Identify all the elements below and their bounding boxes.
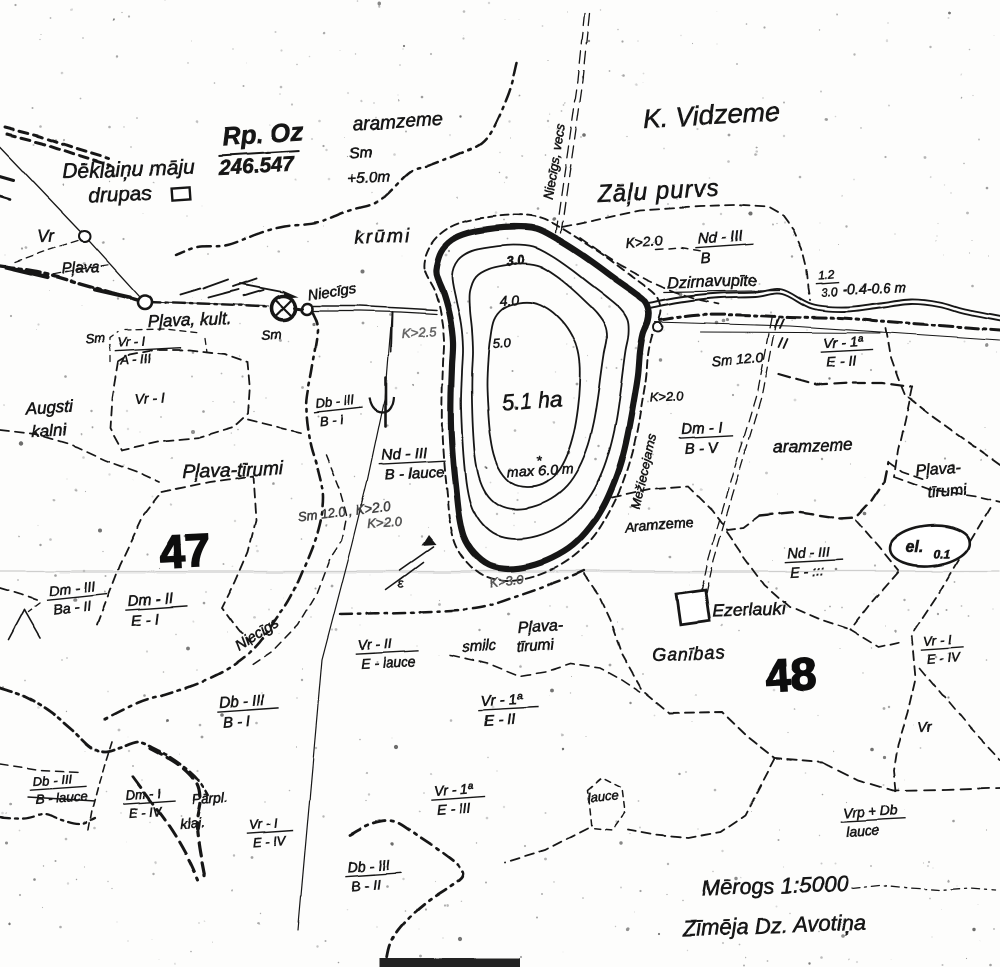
svg-text:47: 47 — [158, 523, 212, 578]
svg-text:B - I: B - I — [319, 411, 345, 428]
svg-text:Sm: Sm — [349, 143, 373, 162]
svg-text:Dēklaiņu māju: Dēklaiņu māju — [61, 155, 195, 183]
svg-text:Vr: Vr — [37, 226, 56, 246]
svg-text:lauce: lauce — [845, 822, 879, 840]
svg-text:el.: el. — [906, 539, 924, 556]
svg-text:K>2.0: K>2.0 — [367, 514, 403, 531]
svg-text:Dzirnavupīte: Dzirnavupīte — [668, 272, 758, 292]
svg-text:B - II: B - II — [350, 876, 381, 894]
svg-text:Sm: Sm — [85, 330, 106, 347]
svg-text:Vr - II: Vr - II — [357, 635, 392, 653]
svg-text:Mērogs 1:5000: Mērogs 1:5000 — [701, 871, 849, 901]
svg-text:E - I: E - I — [130, 611, 159, 630]
svg-text:drupas: drupas — [87, 182, 152, 207]
svg-text:Db - III: Db - III — [32, 771, 72, 789]
svg-text:Dm - I: Dm - I — [681, 419, 723, 438]
svg-text:Nd - III: Nd - III — [381, 445, 427, 464]
svg-text:K>2.5: K>2.5 — [401, 324, 437, 341]
svg-text:Vr - 1ª: Vr - 1ª — [823, 333, 864, 351]
svg-text:K>2.0: K>2.0 — [624, 232, 662, 251]
svg-text:Pļava: Pļava — [61, 258, 99, 277]
svg-text:A - III: A - III — [119, 351, 152, 368]
svg-text:5.1 ha: 5.1 ha — [501, 386, 564, 415]
svg-text:3.0: 3.0 — [820, 285, 838, 300]
svg-text:4.0: 4.0 — [499, 292, 520, 309]
svg-text:3.0: 3.0 — [506, 252, 526, 269]
svg-text:Vrp + Db: Vrp + Db — [842, 802, 898, 821]
svg-text:Pļava-: Pļava- — [517, 618, 563, 637]
svg-text:Pļava, kult.: Pļava, kult. — [147, 309, 231, 331]
svg-text:kalni: kalni — [31, 420, 68, 441]
svg-text:Vr - I: Vr - I — [117, 334, 146, 350]
svg-text:Vr - I: Vr - I — [249, 816, 278, 833]
svg-text:E - IV: E - IV — [926, 649, 961, 666]
svg-text:Pļava-tīrumi: Pļava-tīrumi — [182, 458, 284, 483]
svg-text:Ganības: Ganības — [651, 642, 726, 665]
svg-text:Dm - I: Dm - I — [125, 786, 162, 803]
svg-text:B - I: B - I — [222, 713, 251, 732]
svg-text:Ezerlauki: Ezerlauki — [711, 598, 787, 621]
svg-text:Vr: Vr — [918, 718, 934, 735]
svg-text:E - IV: E - IV — [128, 803, 163, 820]
svg-text:Sm: Sm — [261, 326, 282, 343]
svg-text:aramzeme: aramzeme — [772, 435, 853, 457]
svg-text:E - II: E - II — [483, 711, 516, 730]
svg-text:E - lauce: E - lauce — [360, 653, 416, 672]
svg-text:1.2: 1.2 — [817, 268, 835, 283]
svg-text:Augsti: Augsti — [24, 396, 74, 418]
svg-text:Vr - I: Vr - I — [134, 389, 165, 407]
svg-text:48: 48 — [764, 647, 818, 702]
svg-text:Db - III: Db - III — [347, 856, 390, 875]
svg-text:Pārpl.: Pārpl. — [191, 789, 228, 807]
svg-text:0.1: 0.1 — [934, 547, 951, 561]
svg-text:krūmi: krūmi — [354, 226, 411, 249]
svg-text:E - II: E - II — [826, 352, 856, 370]
svg-text:Vr - 1ª: Vr - 1ª — [480, 691, 523, 710]
svg-text:Nd - III: Nd - III — [787, 543, 830, 561]
svg-text:+5.0m: +5.0m — [347, 168, 390, 187]
svg-text:K>2.0: K>2.0 — [649, 388, 685, 405]
svg-text:E - :::: E - ::: — [790, 562, 824, 580]
svg-text:5.0: 5.0 — [492, 335, 512, 351]
svg-text:Vr - I: Vr - I — [923, 632, 952, 649]
svg-text:E - III: E - III — [436, 800, 471, 818]
svg-text:246.547: 246.547 — [217, 153, 296, 180]
svg-text:smilc: smilc — [461, 637, 497, 656]
svg-text:B - lauce: B - lauce — [384, 464, 444, 484]
svg-text:klaj.: klaj. — [179, 815, 205, 832]
svg-text:tīrumi: tīrumi — [516, 637, 554, 656]
svg-text:ε: ε — [398, 576, 404, 591]
svg-text:Vr - 1ª: Vr - 1ª — [433, 780, 474, 799]
svg-text:B - V: B - V — [684, 439, 720, 458]
svg-text:B: B — [700, 250, 711, 268]
svg-text:tīrumi: tīrumi — [927, 482, 968, 502]
svg-text:E - IV: E - IV — [252, 833, 287, 850]
svg-text:Rp. Oz: Rp. Oz — [220, 116, 304, 152]
svg-text:lauce: lauce — [587, 788, 619, 805]
svg-text:-0.4-0.6 m: -0.4-0.6 m — [843, 279, 908, 297]
